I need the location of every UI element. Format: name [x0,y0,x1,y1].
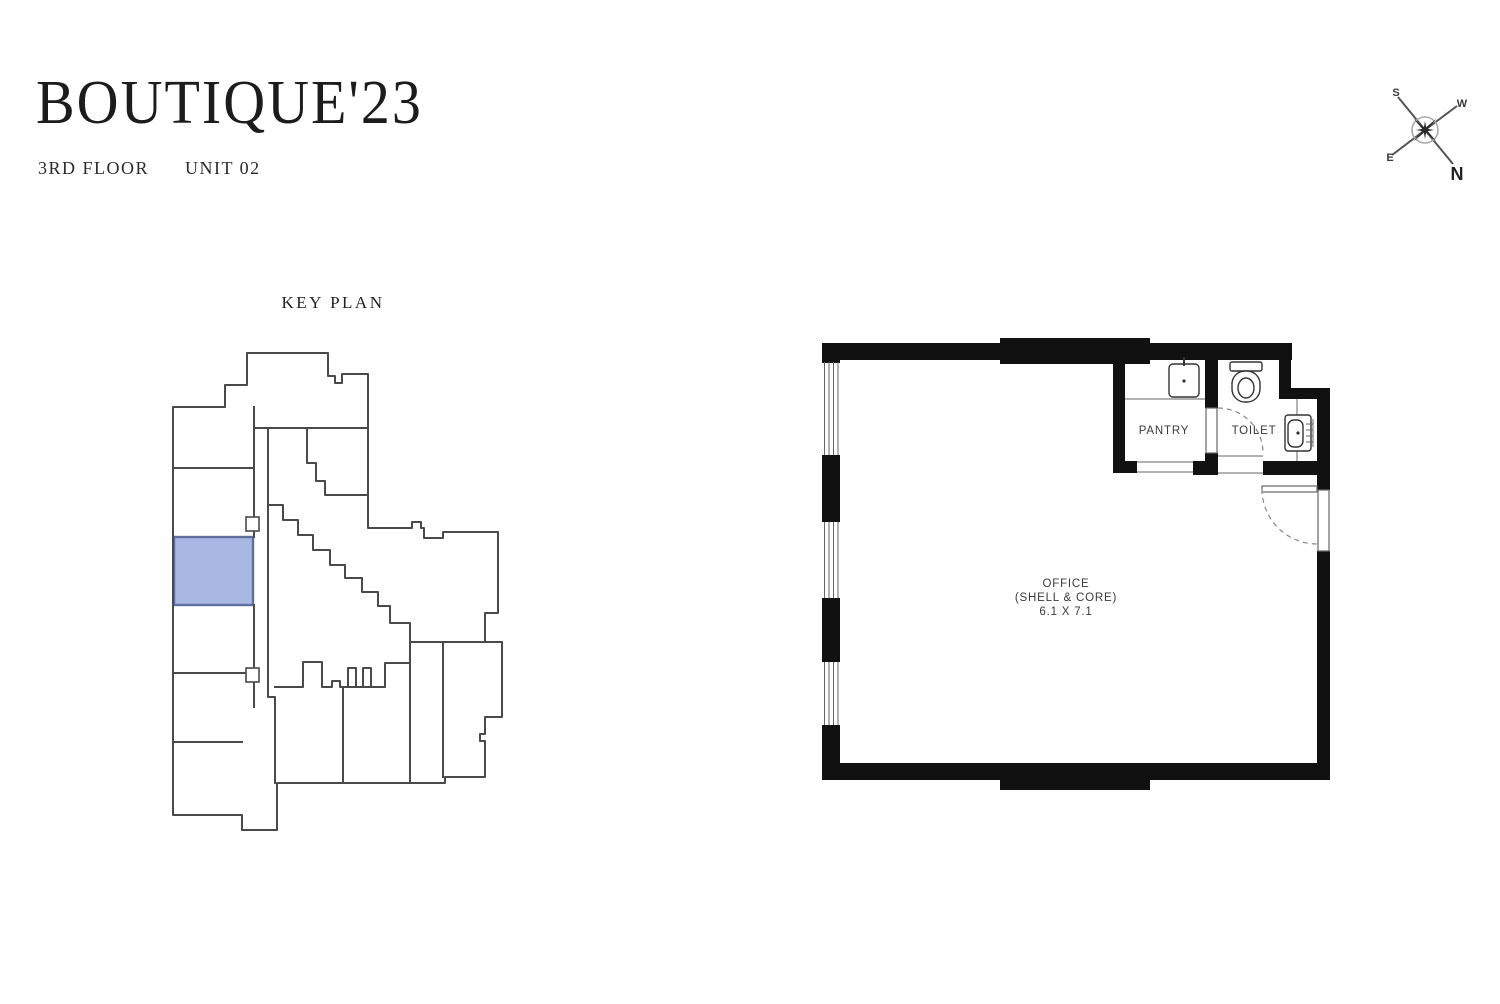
pantry-toilet-divider-wall [1205,360,1218,408]
toilet-label: TOILET [1232,425,1277,437]
right-wall-lower [1317,551,1330,780]
wc-toilet-icon [1230,362,1262,402]
floor-label: 3RD FLOOR [38,158,149,178]
pantry-sink-icon [1169,357,1199,397]
office-label: OFFICE (SHELL & CORE) 6.1 X 7.1 [1015,578,1117,618]
left-wall-column-1 [822,455,840,522]
pantry-opening [1137,462,1193,472]
bottom-wall-thick-section [1000,763,1150,790]
pantry-wall-stub [1113,461,1137,473]
compass-east-label: E [1386,152,1393,164]
office-dimensions: 6.1 X 7.1 [1039,606,1092,618]
compass-north-label: N [1451,164,1464,184]
left-wall-corner-bottom [822,725,840,780]
entrance-door-jamb [1318,490,1329,551]
toilet-door-leaf [1206,408,1217,453]
left-wall-corner-top [822,343,840,363]
window-wall [825,362,839,725]
entrance-door [1262,486,1329,551]
compass-star-icon [1414,119,1437,142]
office-name: OFFICE [1043,578,1090,590]
right-wall-upper [1317,398,1330,490]
unit-label: UNIT 02 [185,158,261,178]
pantry-label: PANTRY [1139,425,1189,437]
key-plan-drawing [160,340,520,840]
compass-south-label: S [1392,87,1399,99]
floor-plan-drawing: PANTRY TOILET OFFICE (SHELL & CORE) 6.1 … [810,328,1355,806]
top-wall-thick-section [1000,338,1150,364]
entrance-door-swing-arc [1262,489,1317,544]
toilet-bottom-wall-left [1193,461,1218,475]
compass-rose: S W E N [1368,70,1493,195]
left-wall-column-2 [822,598,840,662]
floor-plan-walls [822,338,1330,790]
plan-subtitle: 3RD FLOORUNIT 02 [38,158,261,179]
compass-west-label: W [1457,98,1468,110]
key-plan-title: KEY PLAN [248,293,418,313]
office-subtitle: (SHELL & CORE) [1015,592,1117,604]
key-plan-highlighted-unit [174,537,253,605]
pantry-left-wall [1113,360,1125,463]
niche-wall [1279,388,1330,399]
brand-logo: BOUTIQUE'23 [36,66,423,138]
entrance-door-leaf [1262,486,1317,492]
toilet-bottom-wall-right [1263,461,1330,475]
washbasin-icon [1285,415,1313,451]
